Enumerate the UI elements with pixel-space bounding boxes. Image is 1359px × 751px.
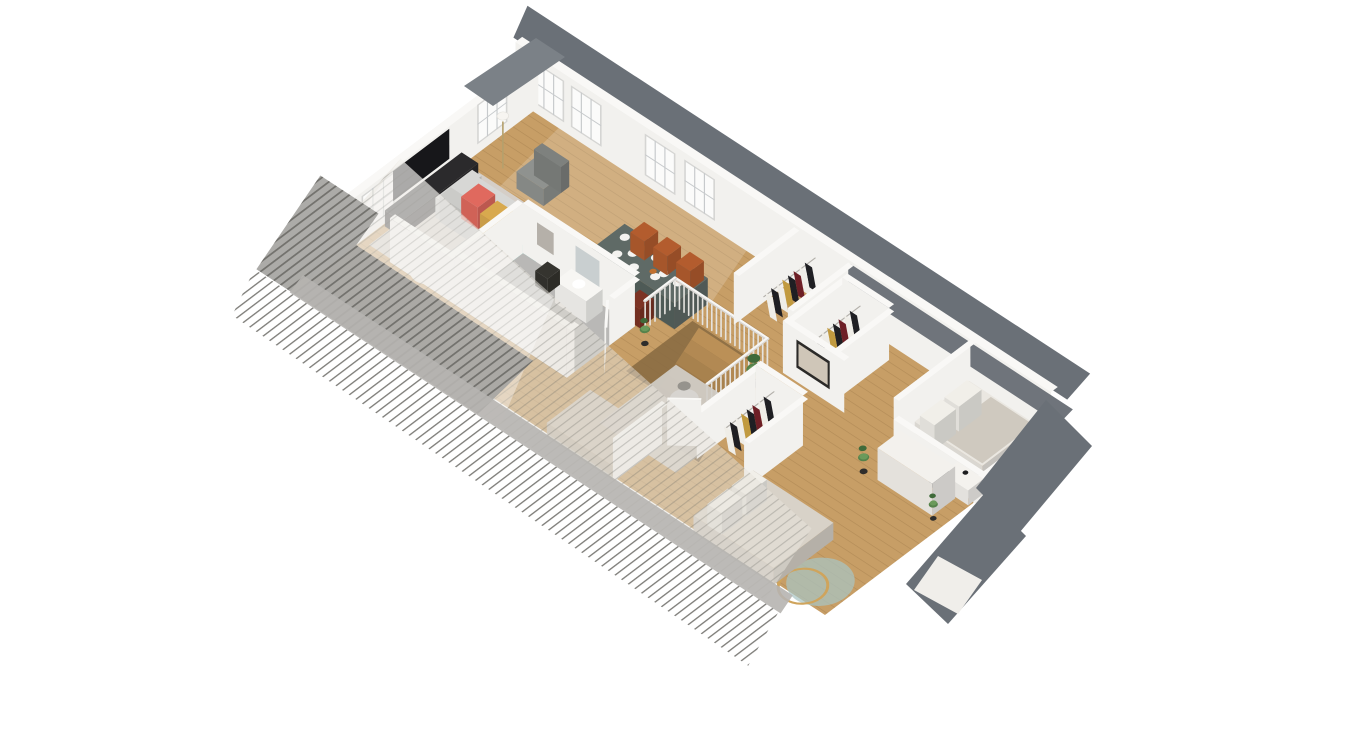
floorplan-svg — [0, 0, 1359, 751]
floorplan-canvas — [0, 0, 1359, 751]
